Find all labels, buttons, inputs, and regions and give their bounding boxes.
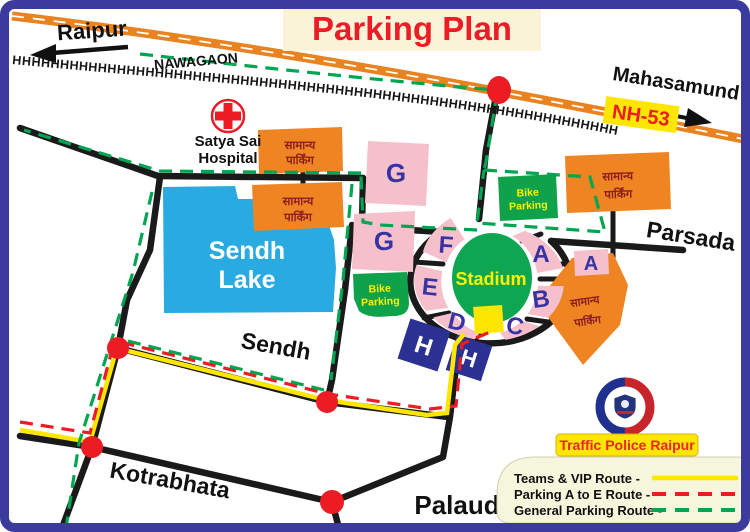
- palaud-label: Palaud: [414, 490, 499, 520]
- zone-g-upper-label: G: [386, 158, 406, 188]
- traffic-police-logo: [597, 379, 653, 435]
- legend-vip-label: Teams & VIP Route -: [514, 471, 640, 486]
- bike-parking-label: Parking: [361, 295, 400, 309]
- traffic-police-badge-bar: Traffic Police Raipur: [556, 434, 698, 456]
- raipur-label: Raipur: [56, 16, 128, 46]
- map-canvas: HHHHHHHHHHHHHHHHHHHHHHHHHHHHHHHHHHHHHHHH…: [0, 0, 750, 532]
- zone-g-lower-label: G: [374, 226, 394, 256]
- bike-parking-north: Bike Parking: [498, 174, 558, 221]
- parking-label: सामान्य: [284, 140, 317, 152]
- junction-dot-sendh-west: [107, 337, 129, 359]
- bike-parking-label: Bike: [516, 186, 539, 199]
- legend-parking-label: Parking A to E Route -: [514, 487, 650, 502]
- zone-f-label: F: [438, 232, 455, 260]
- badge-band: [617, 411, 633, 414]
- lake-label-line2: Lake: [219, 266, 276, 294]
- parking-plan-map: HHHHHHHHHHHHHHHHHHHHHHHHHHHHHHHHHHHHHHHH…: [0, 0, 750, 532]
- parking-label: पार्किंग: [285, 153, 314, 167]
- bike-parking-label: Parking: [509, 199, 548, 213]
- legend-general-label: General Parking Route -: [514, 503, 662, 518]
- junction-dot-sendh-east: [316, 391, 338, 413]
- zone-a-east-label: A: [584, 253, 598, 275]
- junction-dot-kotrabhata-west: [81, 436, 103, 458]
- vip-gate-square: [473, 305, 504, 334]
- map-title: Parking Plan: [283, 5, 541, 51]
- hospital-label-line1: Satya Sai: [195, 133, 262, 150]
- page-title: Parking Plan: [312, 10, 512, 47]
- hospital-label-line2: Hospital: [198, 150, 257, 167]
- hospital-cross-icon: [224, 103, 233, 129]
- badge-center: [621, 400, 629, 408]
- parking-label: सामान्य: [601, 170, 634, 183]
- traffic-police-label: Traffic Police Raipur: [559, 437, 695, 453]
- bike-parking-label: Bike: [368, 282, 391, 295]
- lake-label-line1: Sendh: [209, 237, 285, 265]
- bike-parking-west: Bike Parking: [353, 272, 409, 317]
- zone-a-ring-label: A: [532, 241, 549, 268]
- stadium-label: Stadium: [455, 269, 526, 289]
- zone-e-label: E: [421, 273, 440, 302]
- parking-label: पार्किंग: [603, 186, 633, 201]
- parking-label: सामान्य: [282, 196, 315, 208]
- junction-dot-kotrabhata-east: [320, 490, 344, 514]
- parking-label: पार्किंग: [283, 210, 312, 224]
- junction-dot-nh53: [487, 76, 511, 104]
- route-legend: Teams & VIP Route - Parking A to E Route…: [497, 457, 746, 523]
